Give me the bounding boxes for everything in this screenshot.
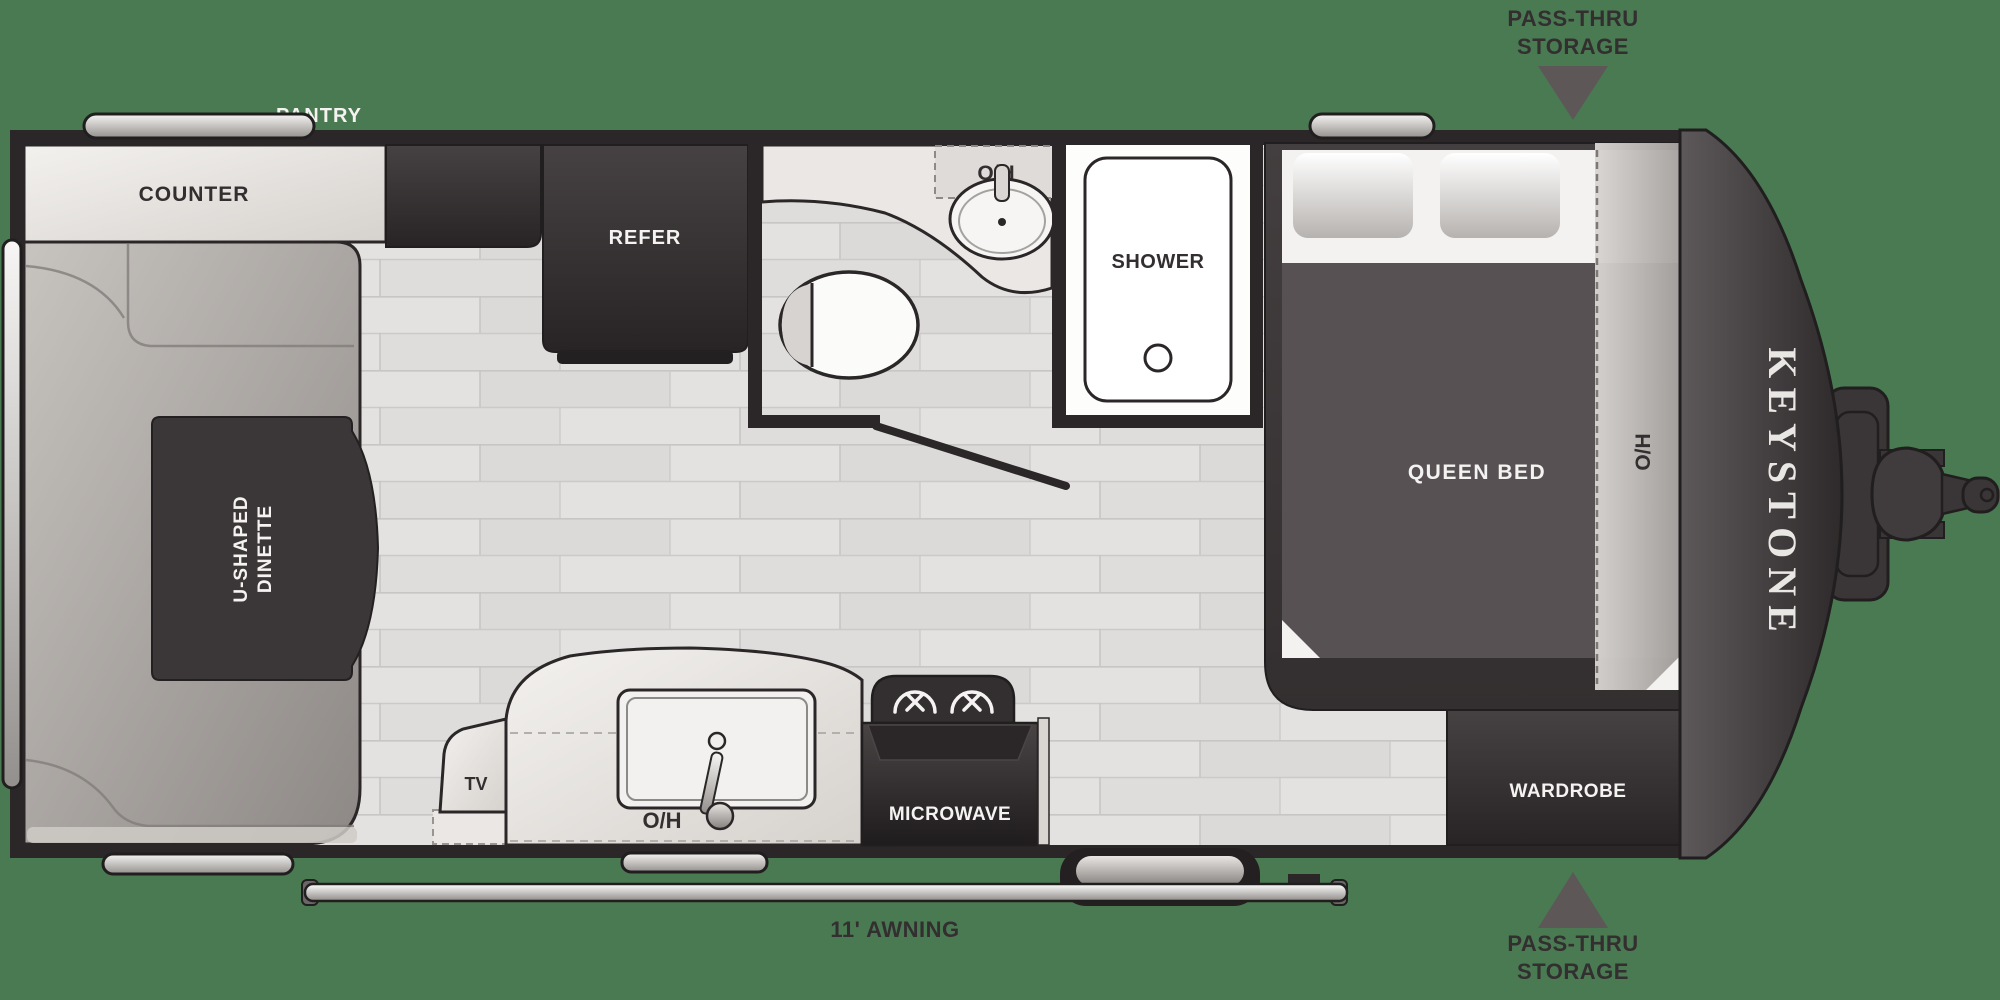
microwave: MICROWAVE: [862, 723, 1038, 845]
bed-overhead-cabinet: O/H: [1595, 143, 1688, 690]
tv-label: TV: [464, 774, 487, 794]
kitchen-lower: TV O/H: [433, 648, 1049, 845]
refer-label: REFER: [609, 227, 682, 249]
bathroom-wall-left: [748, 130, 762, 428]
pantry-cabinet: [386, 145, 541, 247]
floorplan-canvas: PASS-THRU STORAGE PANTRY COUNTER REFER O…: [0, 0, 2000, 1000]
tv-cabinet-base: [433, 810, 508, 844]
cooktop: [872, 676, 1014, 723]
refrigerator: REFER: [543, 145, 748, 364]
hitch-ball-mount: [1963, 478, 1998, 512]
entry-grab-handle: [622, 853, 767, 872]
bed-overhead-label: O/H: [1632, 433, 1655, 470]
pillow-icon: [1293, 153, 1413, 238]
passthru-front-line1: PASS-THRU: [1507, 6, 1638, 31]
dinette-label-line1: U-SHAPED: [231, 495, 252, 602]
awning-label: 11' AWNING: [830, 917, 959, 942]
shower-label: SHOWER: [1112, 251, 1205, 273]
cabinet-trim: [1038, 718, 1049, 845]
counter-label: COUNTER: [139, 183, 250, 206]
queen-bed-label: QUEEN BED: [1408, 461, 1546, 484]
passthru-front-line2: STORAGE: [1517, 34, 1629, 59]
toilet-icon: [780, 272, 918, 378]
kitchen-overhead-label: O/H: [642, 808, 681, 833]
kitchen-counter-top: COUNTER: [24, 145, 386, 242]
awning-rail: [305, 884, 1347, 901]
window-rear: [3, 240, 21, 788]
brand-logo-text: KEYSTONE: [1760, 347, 1805, 641]
window-top-right: [1310, 114, 1434, 138]
shower: SHOWER: [1052, 130, 1263, 428]
bathroom-wall-bottom: [748, 415, 880, 428]
passthru-rear-line1: PASS-THRU: [1507, 931, 1638, 956]
passthru-rear-line2: STORAGE: [1517, 959, 1629, 984]
dinette-label-line2: DINETTE: [255, 505, 276, 593]
wardrobe-label: WARDROBE: [1510, 781, 1627, 802]
microwave-label: MICROWAVE: [889, 804, 1011, 825]
pillow-icon: [1440, 153, 1560, 238]
wardrobe: WARDROBE: [1447, 710, 1688, 845]
coupler-bell: [1872, 448, 1944, 540]
window-top-left: [84, 114, 314, 138]
entry-grab-handle: [103, 854, 293, 874]
bathroom-faucet-icon: [995, 165, 1009, 201]
u-shaped-dinette: U-SHAPED DINETTE: [24, 242, 378, 844]
